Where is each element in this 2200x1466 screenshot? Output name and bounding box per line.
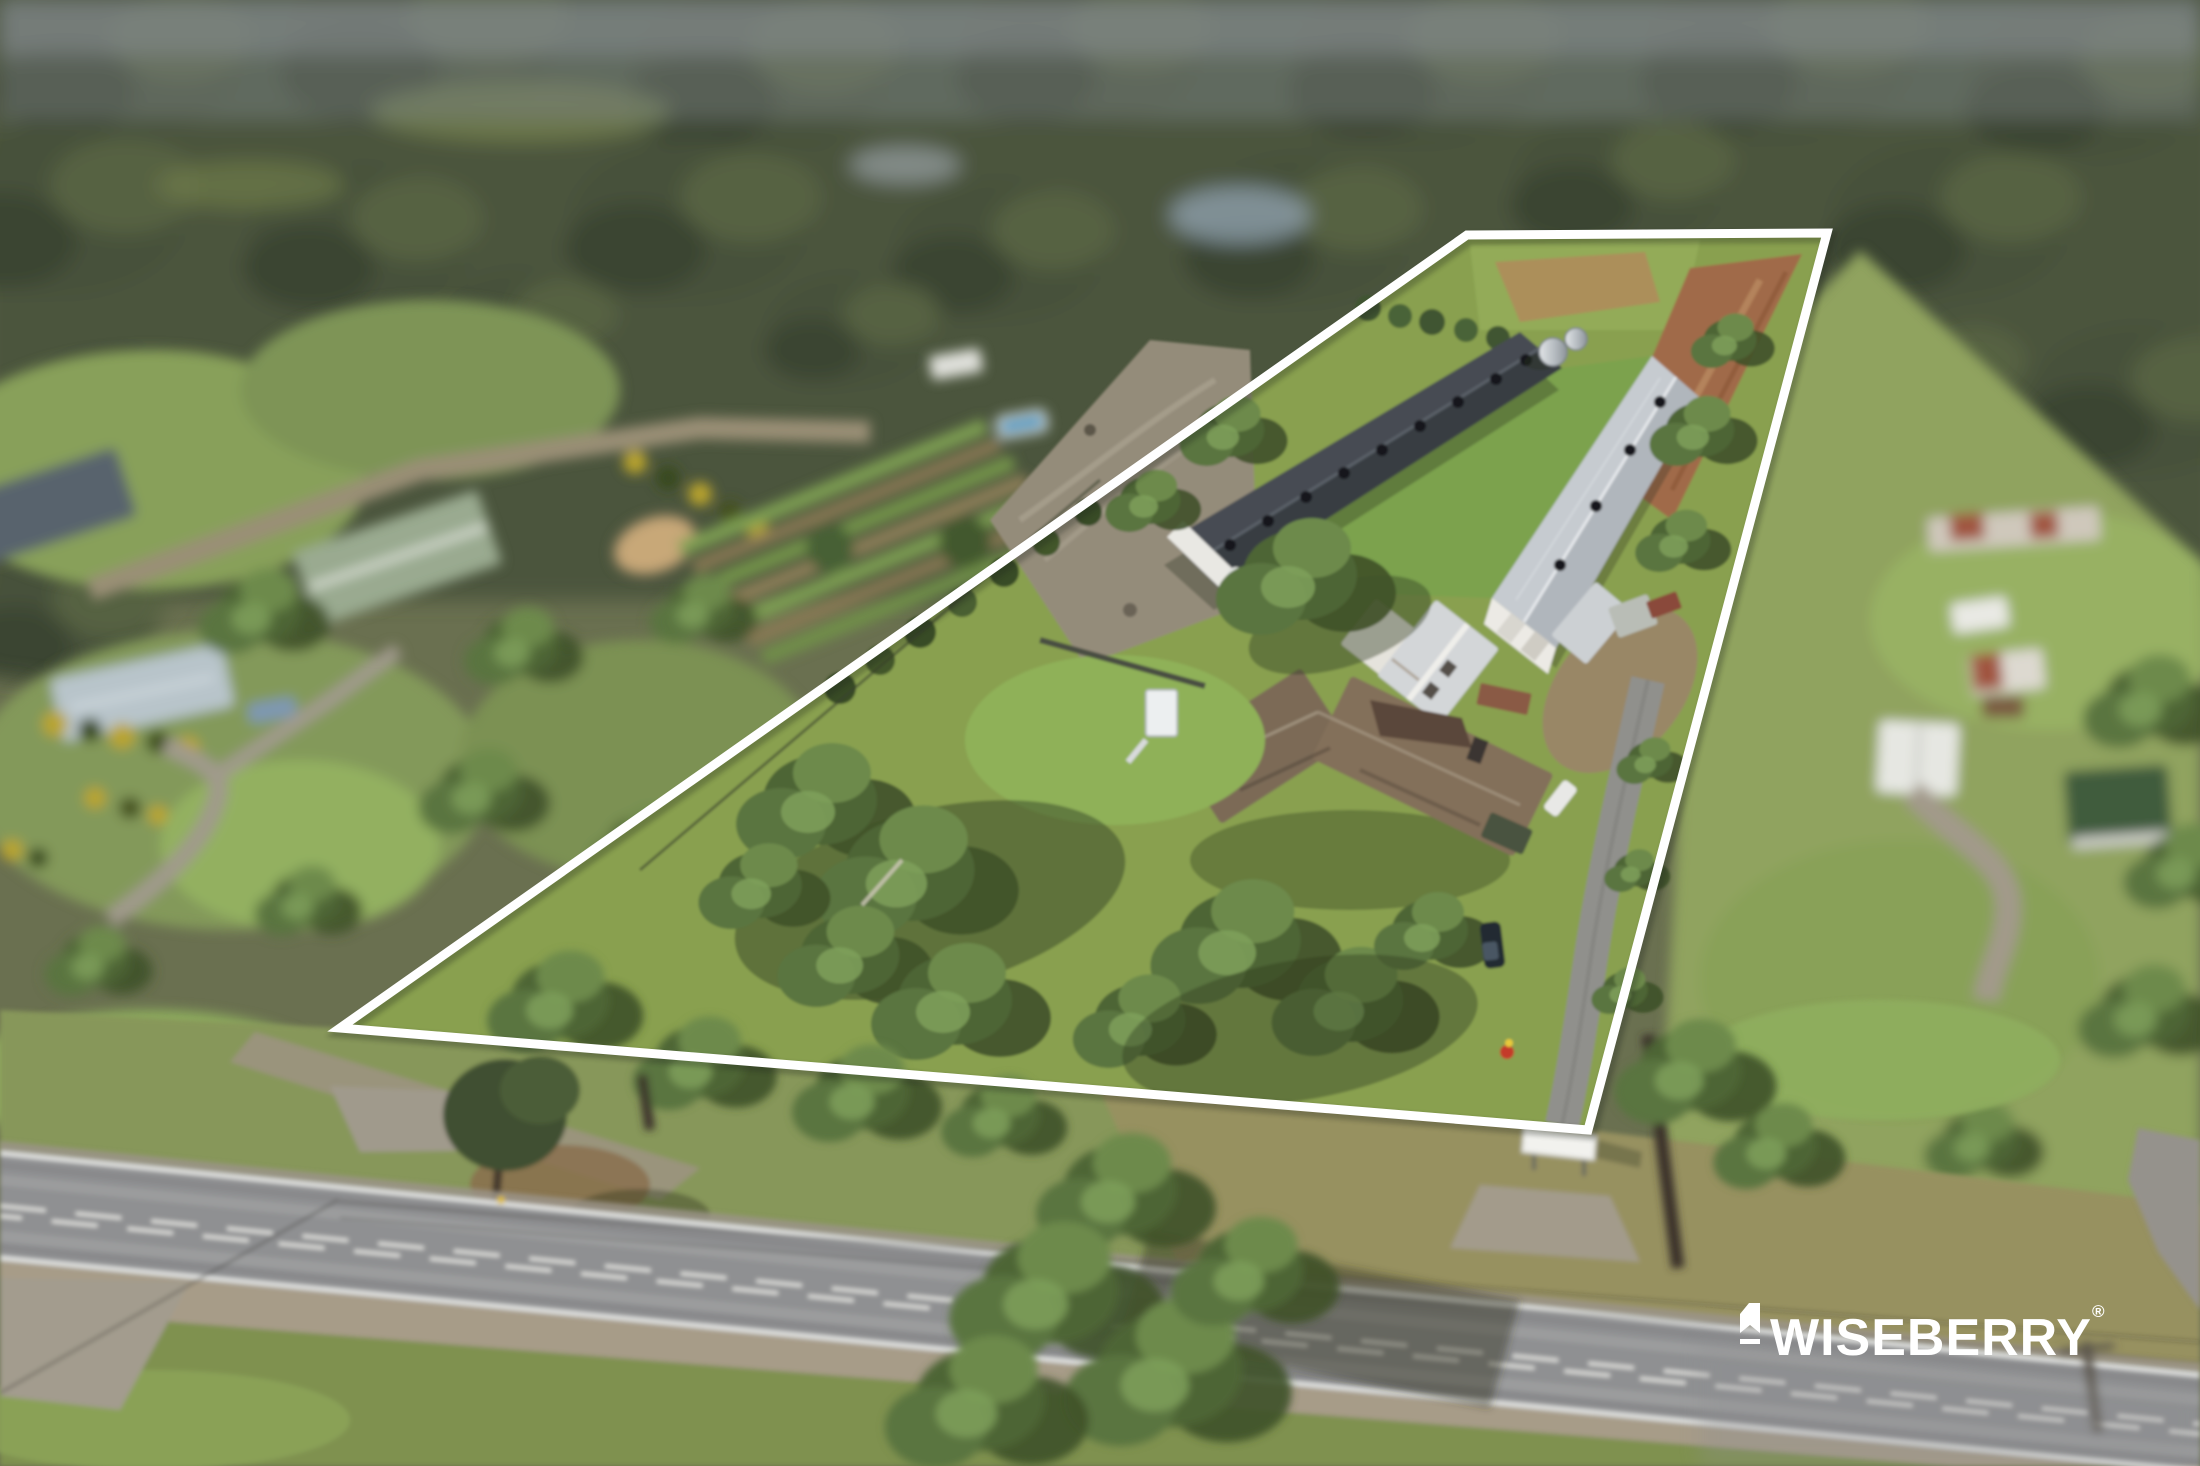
palm-tree	[939, 516, 991, 568]
palm-tree	[806, 524, 854, 572]
road-reflector	[497, 1196, 505, 1204]
watermark-brand-text: WISEBERRY	[1770, 1309, 2092, 1367]
neighbour-house-roof	[1170, 187, 1310, 243]
red-marker	[1500, 1045, 1514, 1059]
green-roof-house	[2064, 764, 2173, 849]
lawn	[965, 655, 1265, 825]
registered-trademark-symbol: ®	[2092, 1302, 2105, 1321]
agency-watermark: WISEBERRY ®	[1740, 1302, 2105, 1367]
scene-canvas: WISEBERRY ®	[0, 0, 2200, 1466]
white-garage	[1876, 720, 1960, 796]
aerial-property-photo: WISEBERRY ®	[0, 0, 2200, 1466]
